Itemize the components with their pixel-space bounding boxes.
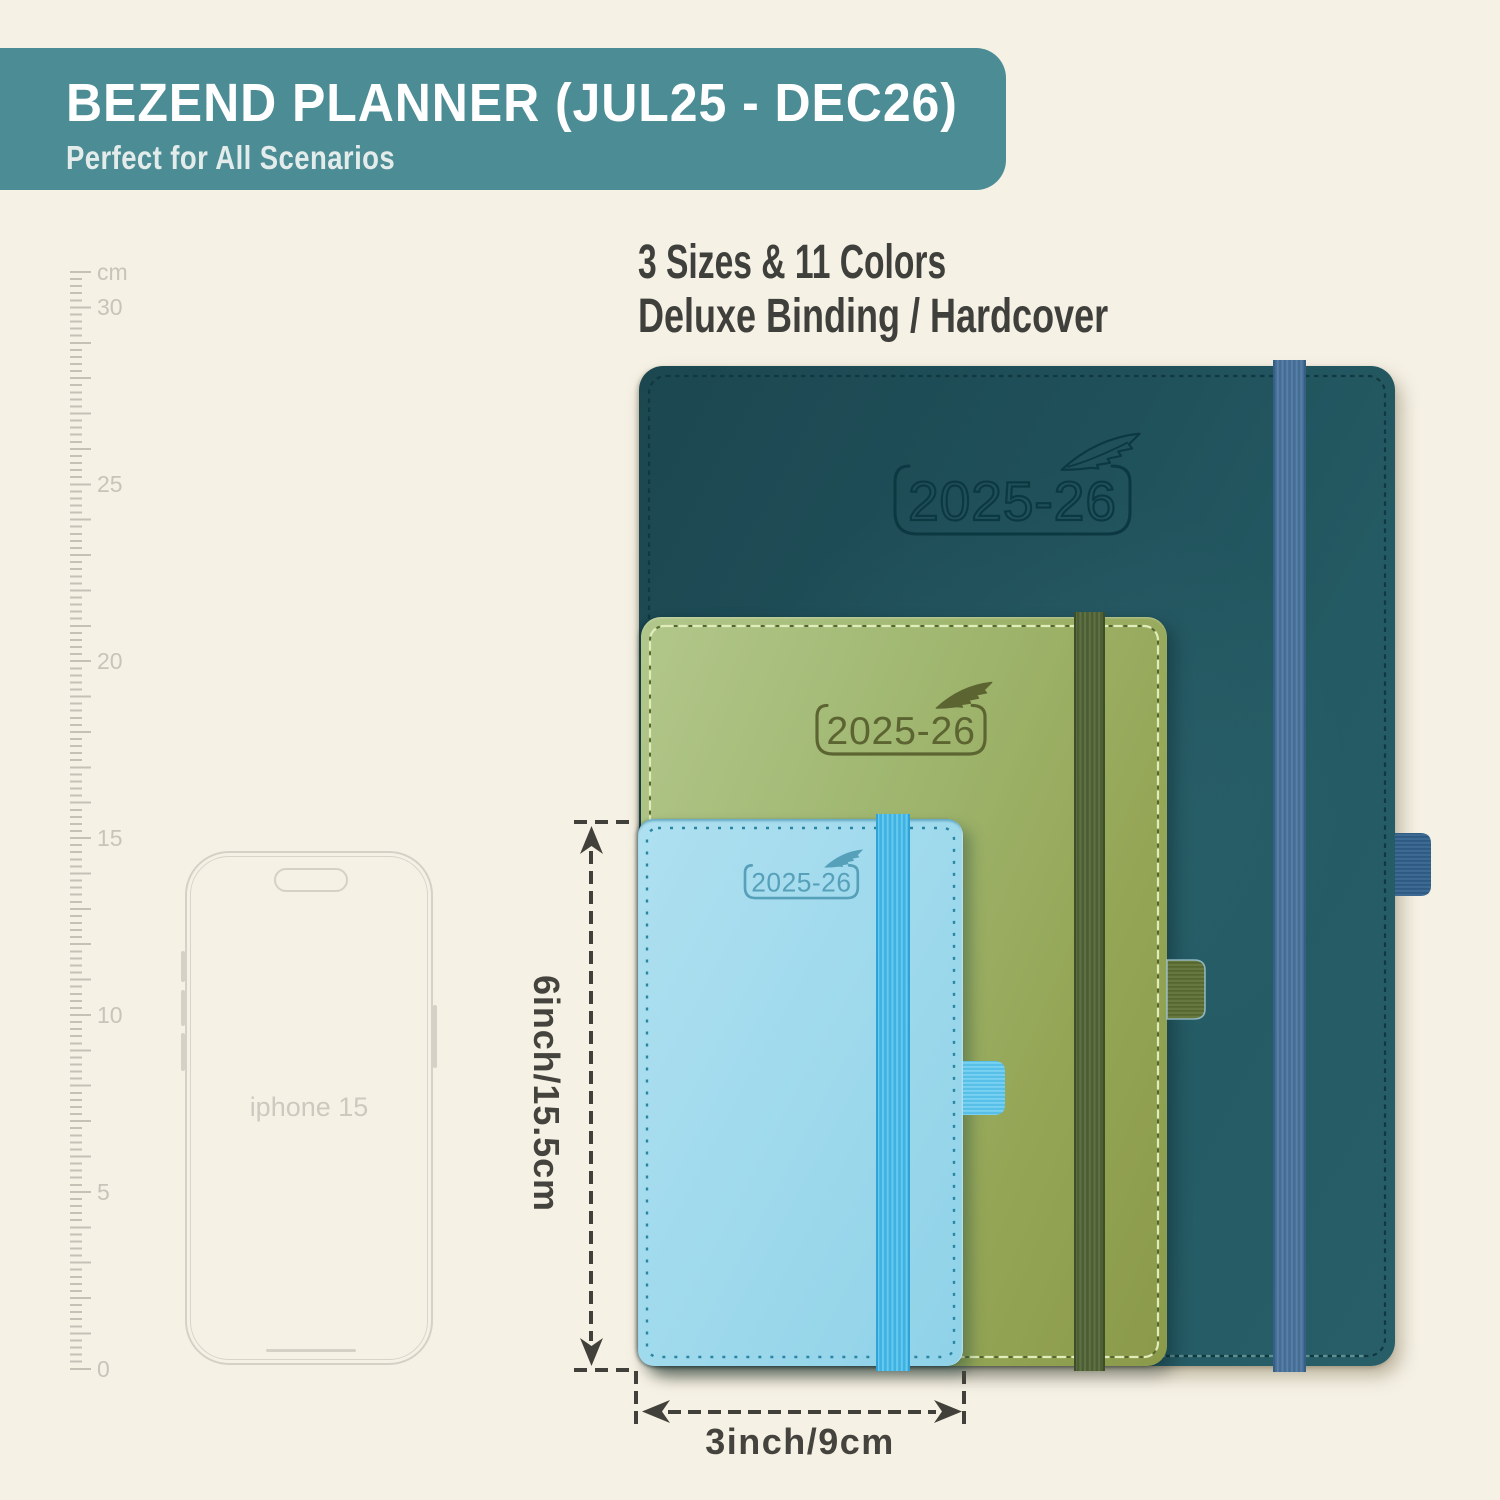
svg-text:2025-26: 2025-26 [826, 709, 975, 753]
svg-text:2025-26: 2025-26 [751, 867, 851, 897]
svg-text:2025-26: 2025-26 [908, 470, 1117, 532]
